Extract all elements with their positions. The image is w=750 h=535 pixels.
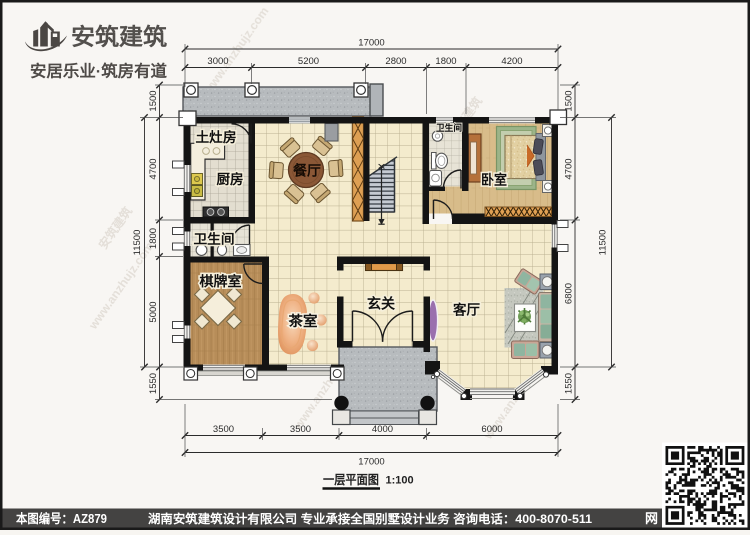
svg-text:4000: 4000 (372, 424, 393, 435)
svg-text:玄关: 玄关 (367, 296, 395, 312)
svg-text:安筑建筑: 安筑建筑 (71, 24, 167, 50)
svg-text:卫生间: 卫生间 (436, 122, 462, 133)
svg-text:3500: 3500 (213, 424, 234, 435)
svg-text:土灶房: 土灶房 (196, 129, 237, 145)
svg-text:17000: 17000 (358, 38, 384, 49)
svg-text:1800: 1800 (435, 56, 456, 67)
svg-text:茶室: 茶室 (287, 313, 317, 329)
svg-text:1800: 1800 (148, 228, 159, 249)
svg-text:网: 网 (645, 511, 658, 526)
svg-text:3500: 3500 (290, 424, 311, 435)
svg-text:餐厅: 餐厅 (292, 163, 321, 179)
svg-text:1500: 1500 (148, 90, 159, 111)
svg-text:1:100: 1:100 (386, 475, 414, 487)
svg-text:6000: 6000 (481, 424, 502, 435)
svg-text:客厅: 客厅 (452, 302, 480, 318)
svg-text:湖南安筑建筑设计有限公司 专业承接全国别墅设计业务 咨询: 湖南安筑建筑设计有限公司 专业承接全国别墅设计业务 咨询电话：400-8070-… (148, 511, 592, 526)
svg-text:1500: 1500 (564, 90, 575, 111)
svg-text:4700: 4700 (564, 158, 575, 179)
svg-text:3000: 3000 (207, 56, 228, 67)
svg-text:棋牌室: 棋牌室 (200, 273, 243, 289)
svg-text:卧室: 卧室 (481, 172, 507, 188)
svg-text:卫生间: 卫生间 (194, 232, 235, 247)
svg-text:厨房: 厨房 (217, 171, 244, 187)
svg-text:4700: 4700 (148, 158, 159, 179)
svg-text:11500: 11500 (598, 230, 609, 256)
svg-text:4200: 4200 (501, 56, 522, 67)
svg-text:6800: 6800 (564, 283, 575, 304)
svg-text:本图编号：AZ879: 本图编号：AZ879 (16, 511, 107, 526)
svg-text:2800: 2800 (385, 56, 406, 67)
svg-text:11500: 11500 (132, 230, 143, 256)
svg-text:1550: 1550 (564, 373, 575, 394)
svg-text:5200: 5200 (298, 56, 319, 67)
svg-text:一层平面图: 一层平面图 (323, 473, 379, 487)
svg-text:17000: 17000 (358, 457, 384, 468)
svg-text:安居乐业·筑房有道: 安居乐业·筑房有道 (30, 62, 167, 81)
svg-text:1550: 1550 (148, 373, 159, 394)
svg-text:5000: 5000 (148, 301, 159, 322)
